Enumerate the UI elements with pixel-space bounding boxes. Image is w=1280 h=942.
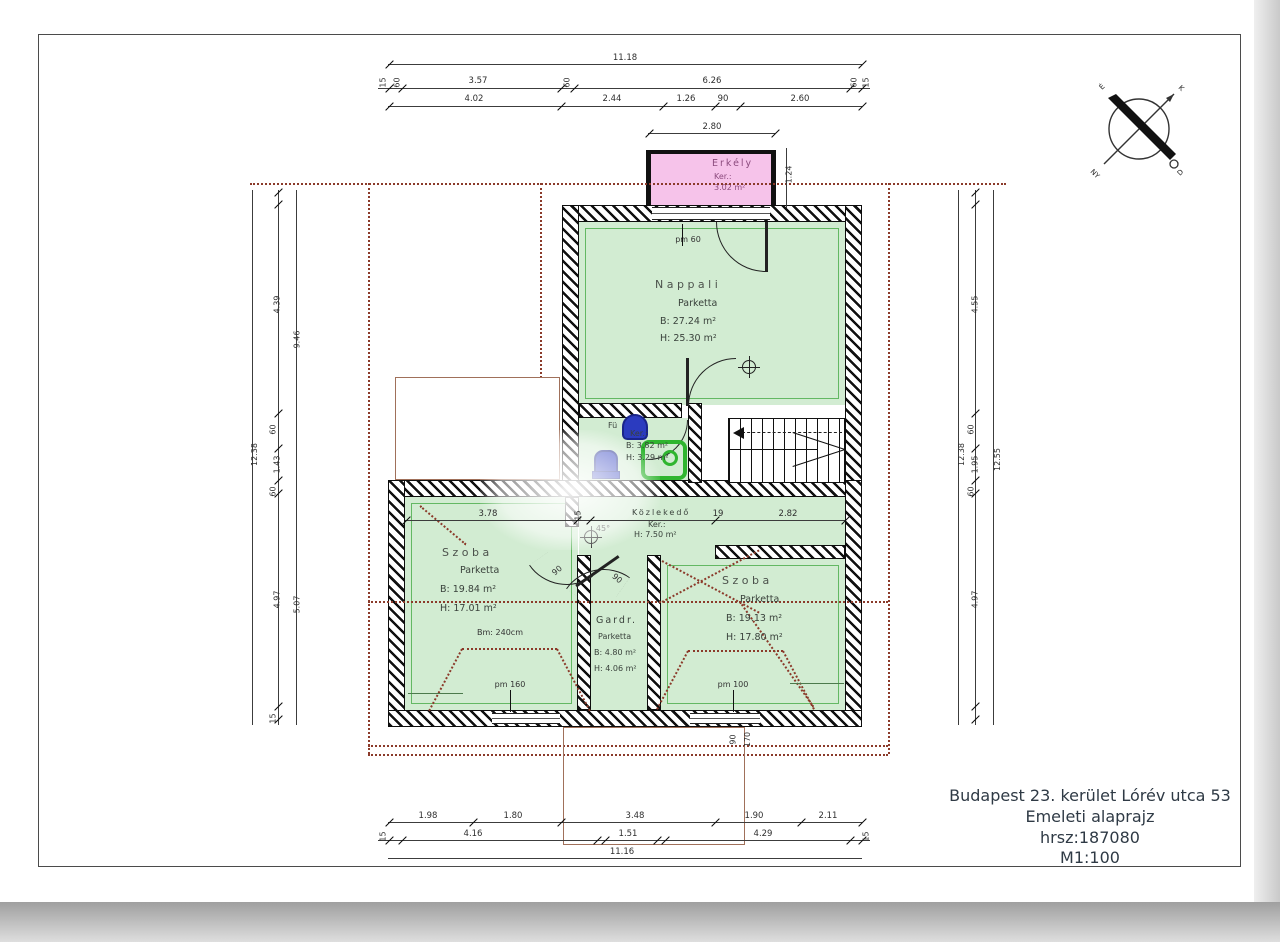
stair-mid-line [728, 449, 818, 450]
dim-label: 12.38 [957, 443, 966, 466]
furdo-h: H: 3.29 m² [626, 453, 669, 462]
kozlekedo-h: H: 7.50 m² [634, 530, 677, 539]
dim-label: 60 [850, 77, 859, 87]
dim-label: 2.11 [819, 811, 838, 821]
pm100-label: pm 100 [718, 680, 749, 689]
dim-bottom-row1-line [388, 822, 862, 823]
balcony-floor: Ker.: [714, 172, 732, 181]
balcony-wall-left [646, 150, 651, 205]
gardrob-name: Gardr. [596, 615, 637, 626]
compass-e-label: K [1177, 84, 1186, 93]
dim-label: 4.97 [970, 591, 979, 609]
dim-label: 1.95 [970, 456, 979, 474]
dim-label: 4.29 [754, 829, 773, 839]
roof-dotted-right [888, 183, 890, 754]
gardrob-h: H: 4.06 m² [594, 664, 637, 673]
dim-label: 3.78 [479, 509, 498, 519]
kozlekedo-name: Közlekedő [632, 508, 690, 517]
roof-dotted-top [250, 183, 1006, 185]
floorplan-page: { "title_block": { "line1": "Budapest 23… [0, 0, 1280, 942]
sill-line-left [408, 693, 463, 694]
pm160-tick [510, 690, 511, 712]
dim-label: 1.24 [784, 166, 793, 184]
dim-top-overall-line [388, 64, 862, 65]
dim-label: 3.57 [469, 76, 488, 86]
dim-label: 1.51 [619, 829, 638, 839]
dim-label: 9.46 [292, 331, 301, 349]
dim-label: 4.55 [970, 296, 979, 314]
balcony-door-opening [714, 207, 770, 220]
dim-top-row3-line [388, 106, 862, 107]
szoba2-upper-strip [735, 497, 845, 545]
compass-rose: É K NY D [1082, 72, 1192, 182]
furdo-b: B: 3.82 m² [626, 441, 668, 450]
wall-lower-left [388, 480, 405, 727]
szoba1-name: Szoba [442, 546, 493, 559]
dim-label: 3.48 [626, 811, 645, 821]
wall-gardrob-szoba2 [647, 555, 661, 710]
dormer2-top [688, 650, 783, 652]
wall-upper-right [845, 205, 862, 497]
bottom-window-right [690, 713, 760, 724]
compass-s-label: D [1176, 168, 1185, 177]
title-parcel-number: hrsz:187080 [940, 828, 1240, 849]
dim-label: 60 [269, 424, 278, 434]
sill-line-right [790, 683, 844, 684]
dim-label: 15 [862, 831, 871, 841]
dim-label: 1.98 [419, 811, 438, 821]
nappali-door-leaf [686, 358, 689, 406]
survey-point-nappali-icon [742, 360, 756, 374]
dim-label: 4.39 [272, 296, 281, 314]
nappali-h: H: 25.30 m² [660, 333, 717, 344]
dim-label: 2.44 [603, 94, 622, 104]
balcony-wall-right [771, 150, 776, 205]
dim-bottom-row2-line [378, 840, 870, 841]
pm60-label: pm 60 [675, 235, 701, 244]
balcony-window [652, 207, 714, 220]
gardrob-b: B: 4.80 m² [594, 648, 636, 657]
compass-w-label: NY [1089, 168, 1102, 181]
roof-dotted-left2 [540, 183, 542, 378]
dim-interior-line [405, 520, 845, 521]
dim-label: 60 [563, 77, 572, 87]
furdo-floor: Ker.: [630, 429, 648, 438]
wall-kozlekedo-szoba2 [715, 545, 845, 559]
dim-left-inner-line [296, 190, 297, 725]
dim-label: 11.16 [610, 847, 634, 857]
balcony-room [650, 152, 772, 205]
title-scale: M1:100 [940, 848, 1240, 869]
szoba1-b: B: 19.84 m² [440, 584, 496, 595]
dim-label: 19 [713, 509, 724, 519]
pm100-tick [733, 690, 734, 712]
nappali-floor: Parketta [678, 298, 717, 309]
dim-label: 60 [269, 486, 278, 496]
gardrob-floor: Parketta [598, 632, 631, 641]
dim-balcony-line [648, 133, 775, 134]
pm160-label: pm 160 [495, 680, 526, 689]
dim-label: 15 [379, 831, 388, 841]
dim-label: 4.02 [465, 94, 484, 104]
balcony-name: Erkély [712, 158, 753, 169]
dim-label: 15 [379, 77, 388, 87]
dim-label: 90 [718, 94, 729, 104]
dim-label: 2.60 [791, 94, 810, 104]
kozlekedo-floor: Ker.: [648, 520, 666, 529]
dim-label: 1.43 [272, 456, 281, 474]
szoba1-h: H: 17.01 m² [440, 603, 497, 614]
dim-label: 5.07 [292, 596, 301, 614]
opening-height-label: 170 [743, 732, 752, 747]
dormer1-top [462, 648, 557, 650]
dim-label: 4.16 [464, 829, 483, 839]
page-edge-bottom [0, 902, 1280, 942]
dim-label: 2.82 [779, 509, 798, 519]
dim-label: 12.38 [250, 443, 259, 466]
dim-label: 1.26 [677, 94, 696, 104]
furdo-name: Fü [608, 421, 617, 430]
balcony-wall-top [646, 150, 776, 154]
balcony-door-leaf [765, 222, 768, 272]
opening-width-label: 90 [729, 734, 738, 744]
szoba2-b: B: 19.13 m² [726, 613, 782, 624]
nappali-b: B: 27.24 m² [660, 316, 716, 327]
dim-label: 60 [967, 424, 976, 434]
nappali-name: Nappali [655, 278, 721, 291]
dim-top-row2-line [378, 88, 870, 89]
roofplane-rect-bottom [563, 727, 745, 845]
dim-label: 1.80 [504, 811, 523, 821]
dim-label: 2.80 [703, 122, 722, 132]
szoba2-h: H: 17.80 m² [726, 632, 783, 643]
szoba1-ceiling: Bm: 240cm [477, 628, 523, 637]
dim-label: 60 [967, 486, 976, 496]
compass-n-label: É [1097, 82, 1107, 92]
dim-label: 6.26 [703, 76, 722, 86]
dim-label: 15 [269, 713, 278, 723]
title-address: Budapest 23. kerület Lórév utca 53 [940, 786, 1240, 807]
szoba2-floor: Parketta [740, 594, 779, 605]
dim-label: 11.18 [613, 53, 637, 63]
dim-label: 15 [862, 77, 871, 87]
szoba2-name: Szoba [722, 574, 773, 587]
dim-label: 12.55 [993, 448, 1002, 471]
bottom-window-left [492, 713, 560, 724]
title-block: Budapest 23. kerület Lórév utca 53 Emele… [940, 786, 1240, 869]
szoba1-floor: Parketta [460, 565, 499, 576]
title-drawing-name: Emeleti alaprajz [940, 807, 1240, 828]
roof-dotted-left [368, 183, 370, 754]
pm60-tick [682, 224, 683, 246]
wall-lower-bottom [388, 710, 862, 727]
stair-walkline [742, 432, 842, 433]
dim-label: 1.90 [745, 811, 764, 821]
dim-label: 15 [574, 510, 583, 520]
dim-label: 60 [393, 77, 402, 87]
dim-label: 4.97 [272, 591, 281, 609]
wall-bath-stairs [688, 403, 702, 483]
page-edge-right [1254, 0, 1280, 910]
stair-arrow-icon [732, 425, 748, 441]
dim-bottom-overall-line [388, 858, 862, 859]
